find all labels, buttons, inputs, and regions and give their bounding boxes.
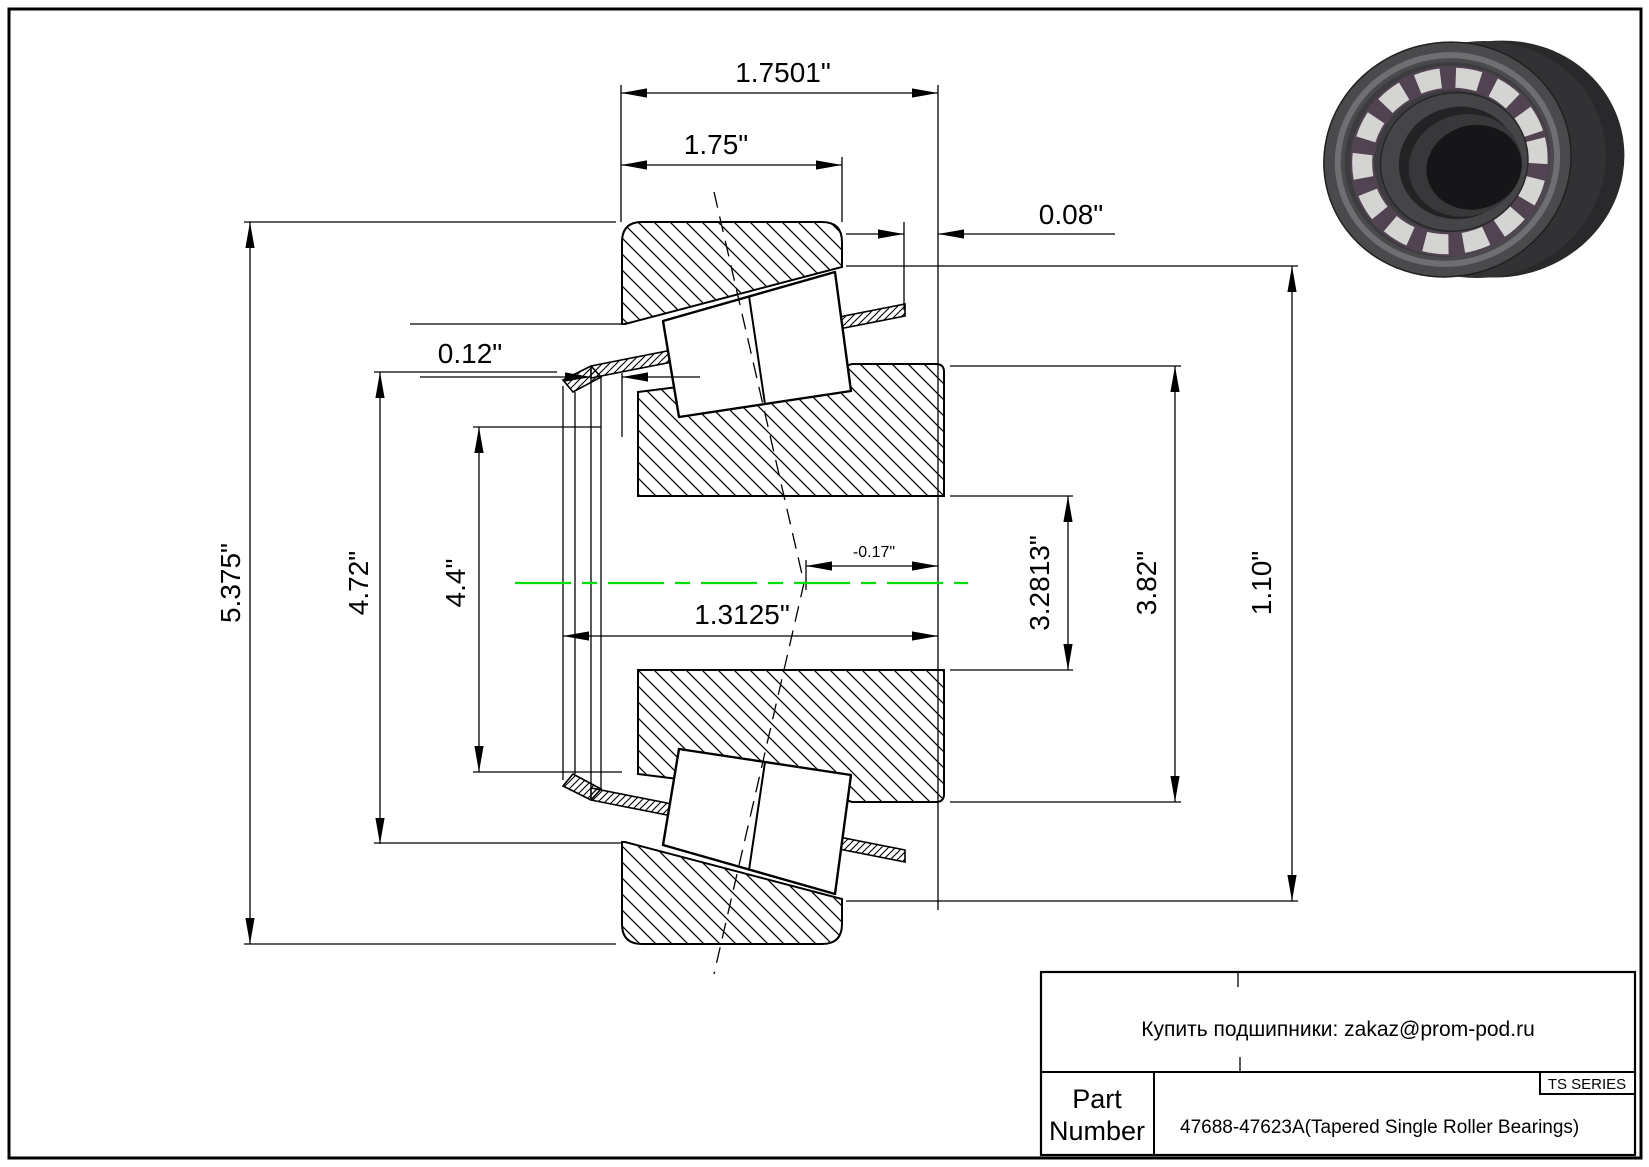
dim-flange-od: 4.72" — [343, 551, 374, 615]
dim-pilot-od: 4.4" — [440, 559, 471, 608]
part-number: 47688-47623A(Tapered Single Roller Beari… — [1180, 1117, 1579, 1138]
part-label-line1: Part — [1072, 1084, 1122, 1114]
dim-standout: 0.08" — [1039, 199, 1103, 230]
title-block: Купить подшипники: zakaz@prom-pod.ru TS … — [1041, 972, 1635, 1155]
series-badge: TS SERIES — [1548, 1076, 1626, 1093]
dim-bore: 3.2813" — [1024, 535, 1055, 631]
dim-cup-width: 1.75" — [684, 129, 748, 160]
bearing-technical-drawing: 1.7501" 1.75" 0.08" 0.12" 5.375" 4.72" 4… — [0, 0, 1649, 1167]
bearing-3d-render — [1299, 3, 1649, 315]
dim-cone-width: 1.3125" — [694, 599, 790, 630]
drawing-page: 1.7501" 1.75" 0.08" 0.12" 5.375" 4.72" 4… — [0, 0, 1649, 1167]
dim-front-offset: 0.12" — [438, 338, 502, 369]
contact-line: Купить подшипники: zakaz@prom-pod.ru — [1141, 1018, 1535, 1041]
dim-overall-width: 1.7501" — [735, 57, 831, 88]
dim-rib-od: 3.82" — [1131, 551, 1162, 615]
bearing-cross-section — [244, 85, 1298, 974]
part-label-line2: Number — [1049, 1116, 1145, 1146]
dim-effective-center: -0.17" — [853, 544, 895, 561]
dim-cup-length: 1.10" — [1246, 551, 1277, 615]
cage-lip-top — [563, 366, 601, 392]
cage-lip-bottom — [563, 774, 601, 800]
dim-housing-od: 5.375" — [215, 543, 246, 623]
